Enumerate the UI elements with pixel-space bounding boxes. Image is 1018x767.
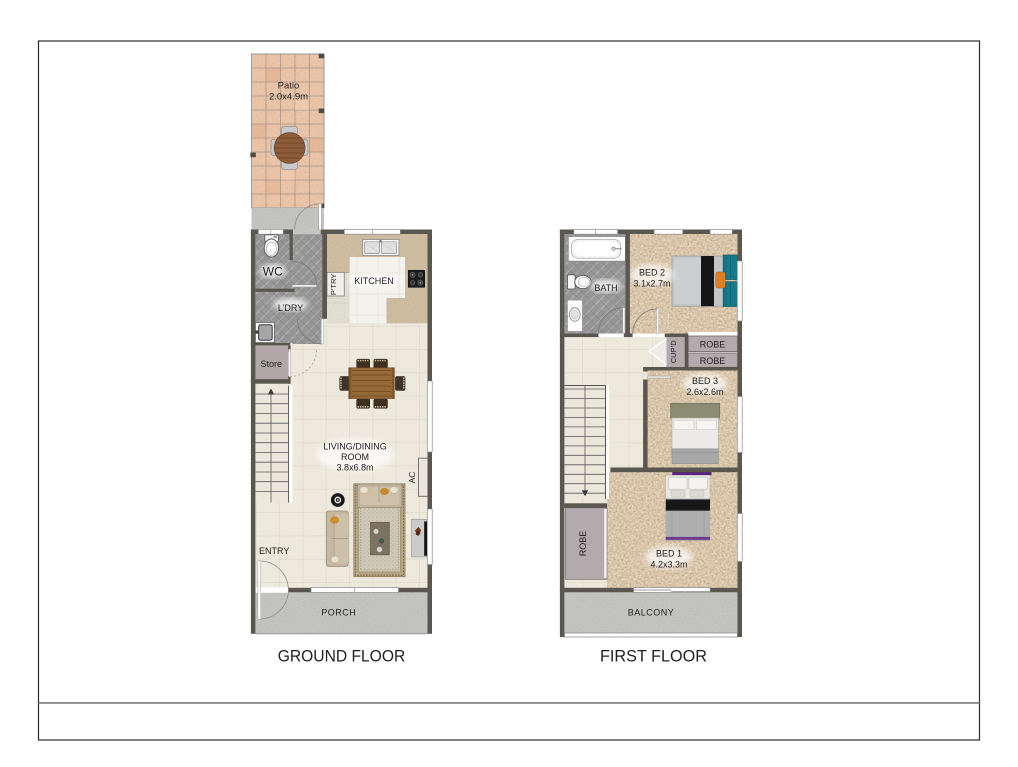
svg-text:P’TRY: P’TRY: [329, 274, 338, 296]
svg-text:3.8x6.8m: 3.8x6.8m: [336, 463, 373, 473]
svg-text:L’DRY: L’DRY: [278, 303, 303, 313]
svg-text:ROOM: ROOM: [341, 452, 369, 462]
svg-text:BED 2: BED 2: [639, 268, 665, 278]
svg-text:3.1x2.7m: 3.1x2.7m: [633, 279, 670, 289]
svg-text:ROBE: ROBE: [700, 340, 726, 350]
svg-text:KITCHEN: KITCHEN: [354, 276, 394, 286]
svg-text:BED 1: BED 1: [656, 549, 682, 559]
svg-text:ROBE: ROBE: [700, 356, 726, 366]
svg-text:Store: Store: [261, 359, 283, 369]
svg-text:BALCONY: BALCONY: [628, 608, 675, 618]
svg-text:2.6x2.6m: 2.6x2.6m: [686, 387, 723, 397]
svg-text:ENTRY: ENTRY: [259, 546, 289, 556]
svg-text:GROUND FLOOR: GROUND FLOOR: [278, 648, 406, 666]
svg-text:Patio: Patio: [278, 81, 300, 92]
svg-text:BATH: BATH: [594, 283, 617, 293]
svg-text:PORCH: PORCH: [321, 608, 356, 618]
svg-text:WC: WC: [263, 265, 283, 279]
svg-text:FIRST FLOOR: FIRST FLOOR: [600, 648, 707, 666]
svg-text:ROBE: ROBE: [578, 531, 588, 557]
svg-text:BED 3: BED 3: [692, 376, 718, 386]
svg-text:2.0x4.9m: 2.0x4.9m: [269, 92, 308, 103]
svg-text:AC: AC: [407, 472, 417, 484]
svg-text:CUP’D: CUP’D: [669, 340, 678, 364]
svg-text:LIVING/DINING: LIVING/DINING: [323, 442, 387, 452]
svg-text:4.2x3.3m: 4.2x3.3m: [650, 560, 687, 570]
